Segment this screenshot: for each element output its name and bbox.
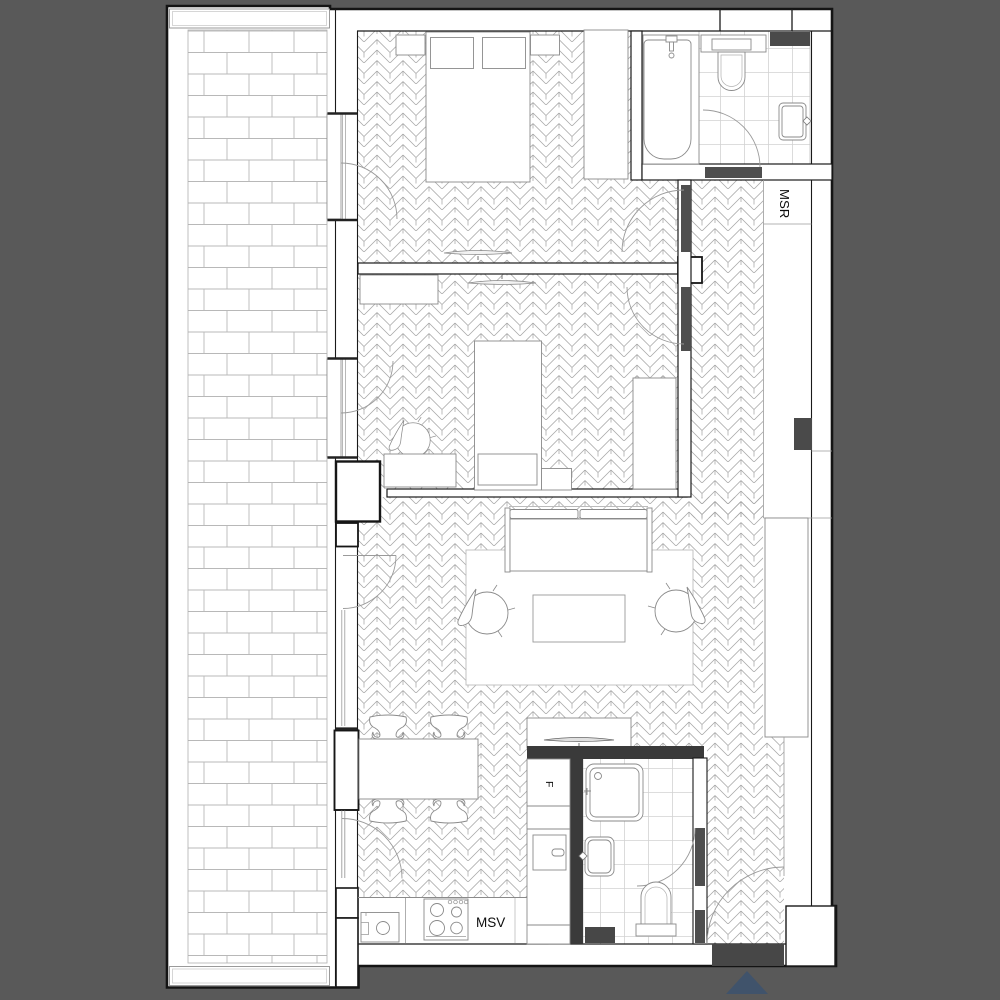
svg-text:MSV: MSV: [476, 915, 505, 930]
svg-text:MSR: MSR: [777, 189, 792, 218]
svg-text:F: F: [543, 781, 555, 787]
